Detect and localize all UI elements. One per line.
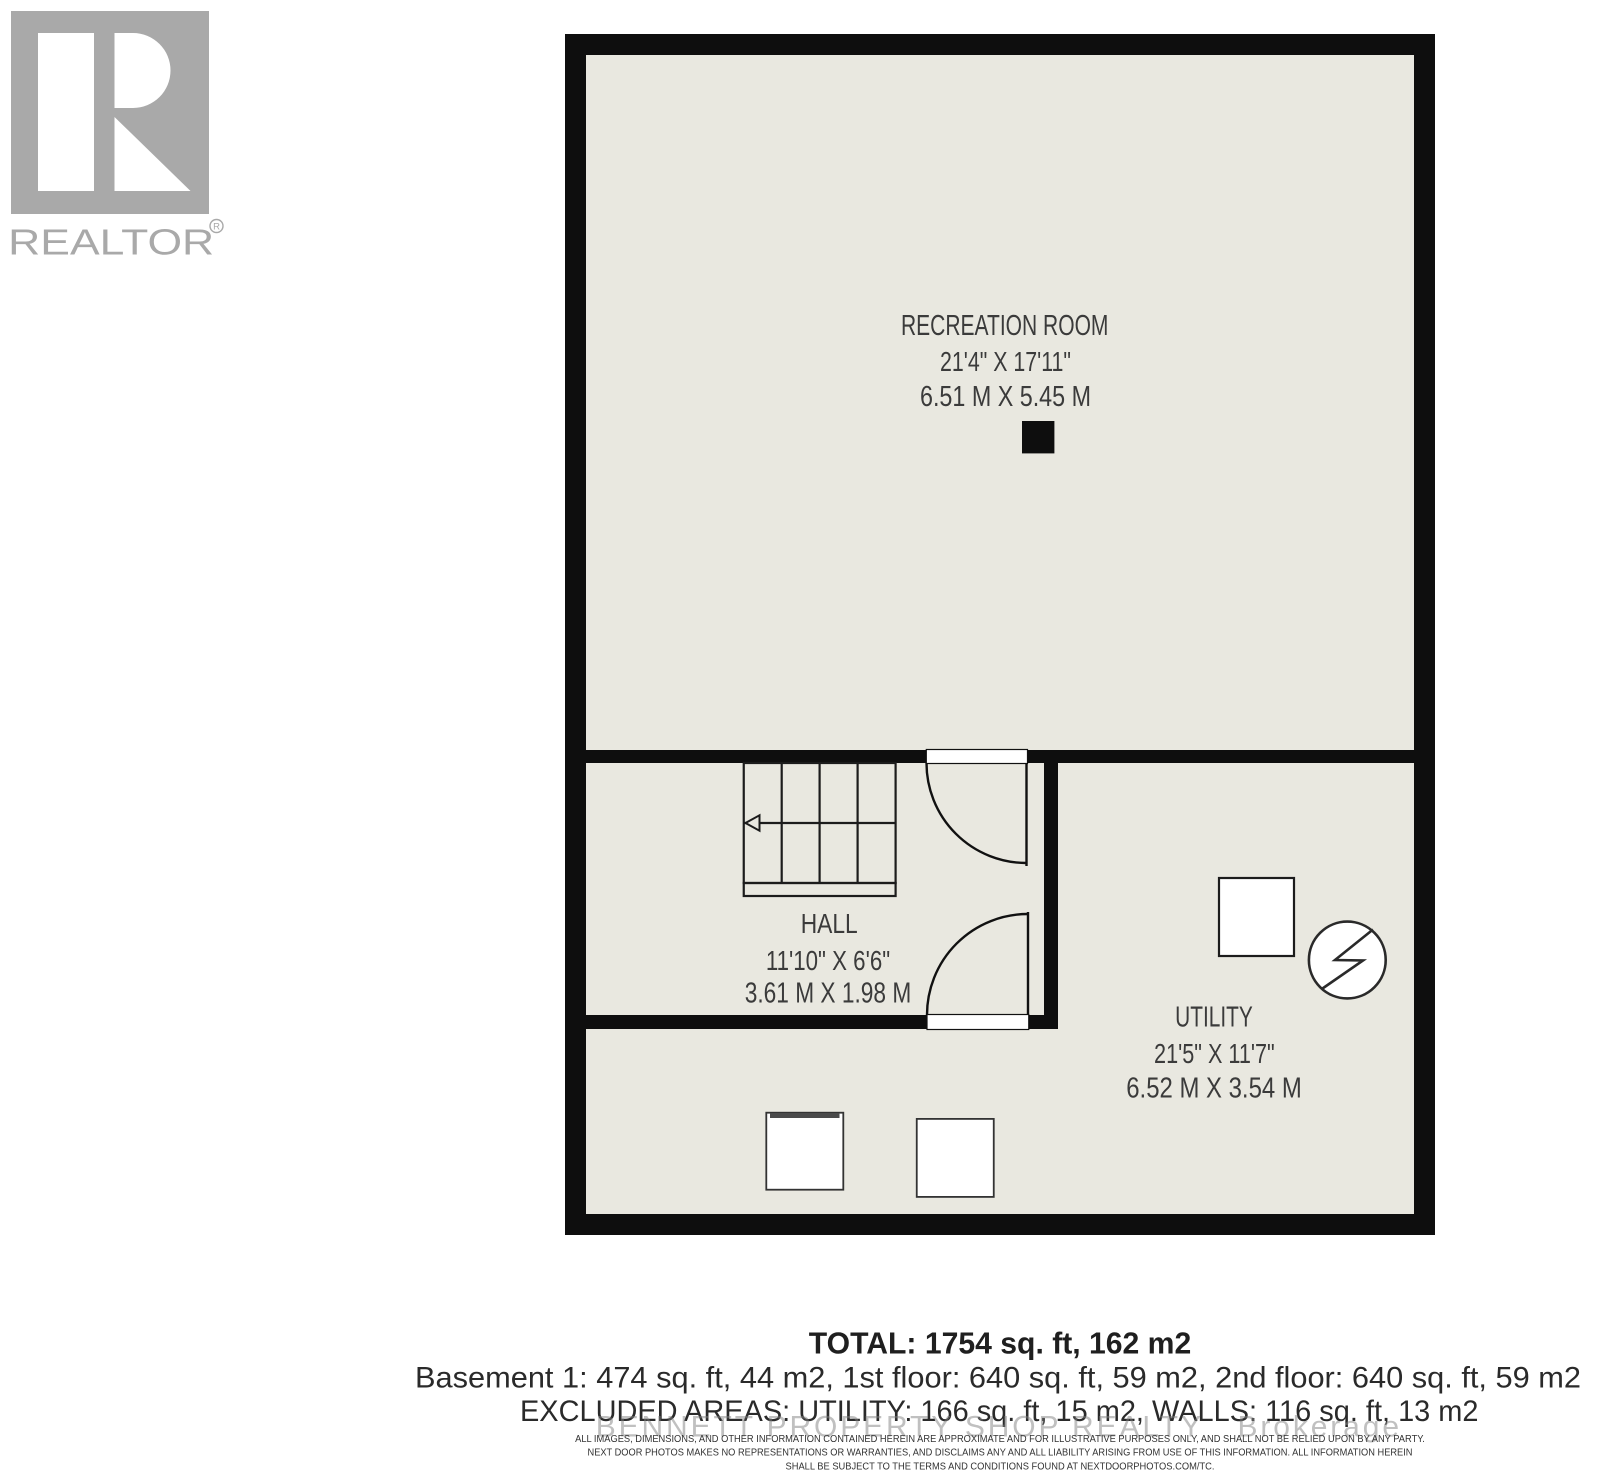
svg-text:3.61 M X 1.98 M: 3.61 M X 1.98 M <box>745 978 912 1010</box>
svg-text:Basement 1: 474 sq. ft, 44 m2,: Basement 1: 474 sq. ft, 44 m2, 1st floor… <box>415 1362 1581 1395</box>
svg-text:UTILITY: UTILITY <box>1175 1002 1253 1034</box>
svg-text:REALTOR: REALTOR <box>8 222 214 263</box>
svg-text:RECREATION ROOM: RECREATION ROOM <box>901 310 1109 342</box>
svg-text:21'5" X 11'7": 21'5" X 11'7" <box>1154 1038 1275 1069</box>
svg-text:6.52 M X 3.54 M: 6.52 M X 3.54 M <box>1126 1072 1302 1104</box>
svg-text:SHALL BE SUBJECT TO THE TERMS: SHALL BE SUBJECT TO THE TERMS AND CONDIT… <box>786 1462 1215 1473</box>
svg-text:6.51 M X 5.45 M: 6.51 M X 5.45 M <box>920 381 1091 413</box>
svg-text:ALL IMAGES, DIMENSIONS, AND OT: ALL IMAGES, DIMENSIONS, AND OTHER INFORM… <box>575 1434 1425 1445</box>
svg-text:R: R <box>213 222 220 233</box>
svg-text:11'10" X 6'6": 11'10" X 6'6" <box>766 945 890 976</box>
svg-text:NEXT DOOR PHOTOS MAKES NO REPR: NEXT DOOR PHOTOS MAKES NO REPRESENTATION… <box>588 1448 1413 1459</box>
svg-text:HALL: HALL <box>801 908 858 939</box>
svg-text:21'4" X 17'11": 21'4" X 17'11" <box>940 346 1071 377</box>
svg-text:TOTAL: 1754 sq. ft, 162 m2: TOTAL: 1754 sq. ft, 162 m2 <box>809 1327 1192 1361</box>
